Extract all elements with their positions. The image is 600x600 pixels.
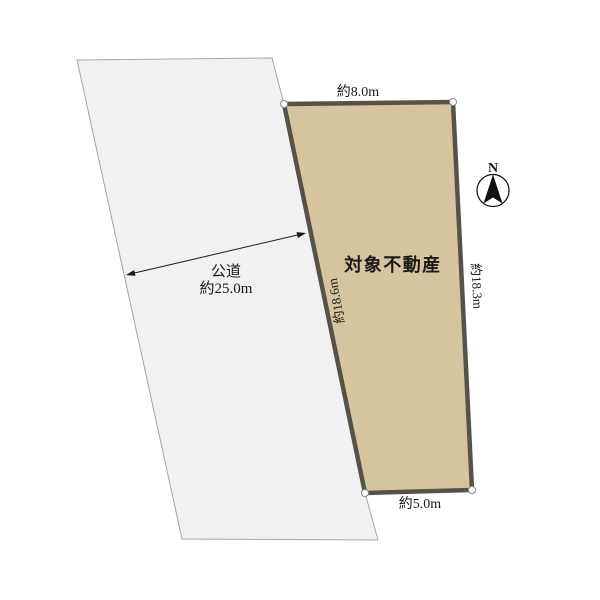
dimension-right-label: 約18.3m	[468, 263, 485, 310]
vertex-marker	[450, 99, 457, 106]
vertex-marker	[362, 490, 369, 497]
north-label: N	[488, 161, 498, 176]
plot-diagram-canvas: 公道 約25.0m 対象不動産 約8.0m 約5.0m 約18.3m 約18.6…	[0, 0, 600, 600]
vertex-marker	[469, 487, 476, 494]
north-compass: N	[477, 161, 509, 207]
road-name-label: 公道	[211, 263, 241, 280]
plot-diagram: 公道 約25.0m 対象不動産 約8.0m 約5.0m 約18.3m 約18.6…	[0, 0, 600, 600]
north-arrow-icon	[484, 175, 503, 204]
dimension-bottom-label: 約5.0m	[399, 496, 441, 512]
dimension-top-label: 約8.0m	[337, 84, 379, 100]
plot-name-label: 対象不動産	[343, 254, 442, 275]
vertex-marker	[281, 101, 288, 108]
road-width-label: 約25.0m	[200, 280, 253, 297]
